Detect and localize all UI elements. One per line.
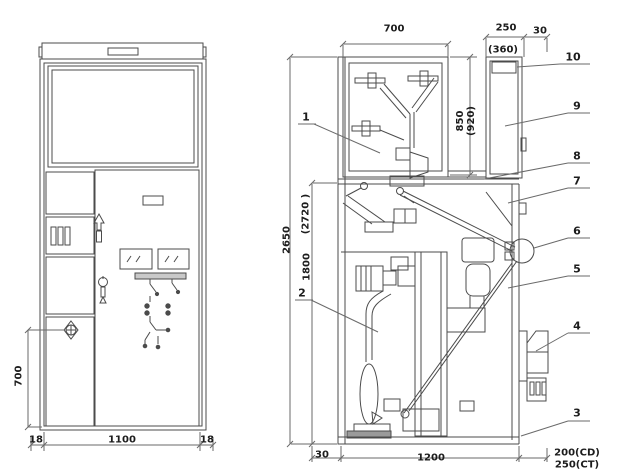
operating-linkage (343, 183, 515, 252)
callout-1: 1 (302, 111, 310, 124)
callout-6: 6 (573, 225, 581, 238)
front-view-drawing (25, 43, 216, 451)
busbar-assembly (352, 71, 438, 186)
dim-side-front-offset: 30 (315, 450, 329, 461)
line-art (0, 0, 628, 474)
dim-front-frame-left: 18 (29, 435, 43, 446)
dim-side-rear-offset: 30 (533, 26, 547, 37)
dim-side-busbar-depth: 700 (384, 24, 405, 35)
dim-side-total-height-alt: (2720 ) (301, 194, 312, 234)
callout-2: 2 (298, 287, 306, 300)
callout-5: 5 (573, 263, 581, 276)
door-handle-icon (64, 321, 78, 339)
callout-9: 9 (573, 100, 581, 113)
callout-10: 10 (565, 51, 580, 64)
side-view-drawing (287, 34, 590, 462)
dim-side-rear-ext-ct: 250(CT) (555, 460, 599, 471)
dim-side-depth: 1200 (417, 453, 445, 464)
dim-side-rear-ext-cd: 200(CD) (554, 448, 600, 459)
dim-front-handle-height: 700 (14, 366, 25, 387)
callout-8: 8 (573, 150, 581, 163)
lv-terminal-box (519, 331, 548, 401)
mimic-diagram (135, 273, 186, 349)
dim-side-upper-height: 850(920) (455, 106, 477, 136)
dim-front-width: 1100 (108, 435, 136, 446)
interlock-key-icon (94, 214, 108, 303)
callout-7: 7 (573, 175, 581, 188)
dim-side-rear-duct-depth: 250 (496, 23, 517, 34)
switchgear-technical-drawing: 700 18 1100 18 700 250 30 (360) 850(920)… (0, 0, 628, 474)
callout-4: 4 (573, 320, 581, 333)
dim-side-total-height: 2650 (282, 226, 293, 254)
front-view-dimensions (25, 327, 216, 451)
callout-3: 3 (573, 407, 581, 420)
dim-side-lower-height: 1800 (302, 253, 313, 281)
meter-windows (120, 249, 189, 269)
dim-side-rear-duct-depth-alt: (360) (488, 45, 518, 56)
dim-front-frame-right: 18 (200, 435, 214, 446)
